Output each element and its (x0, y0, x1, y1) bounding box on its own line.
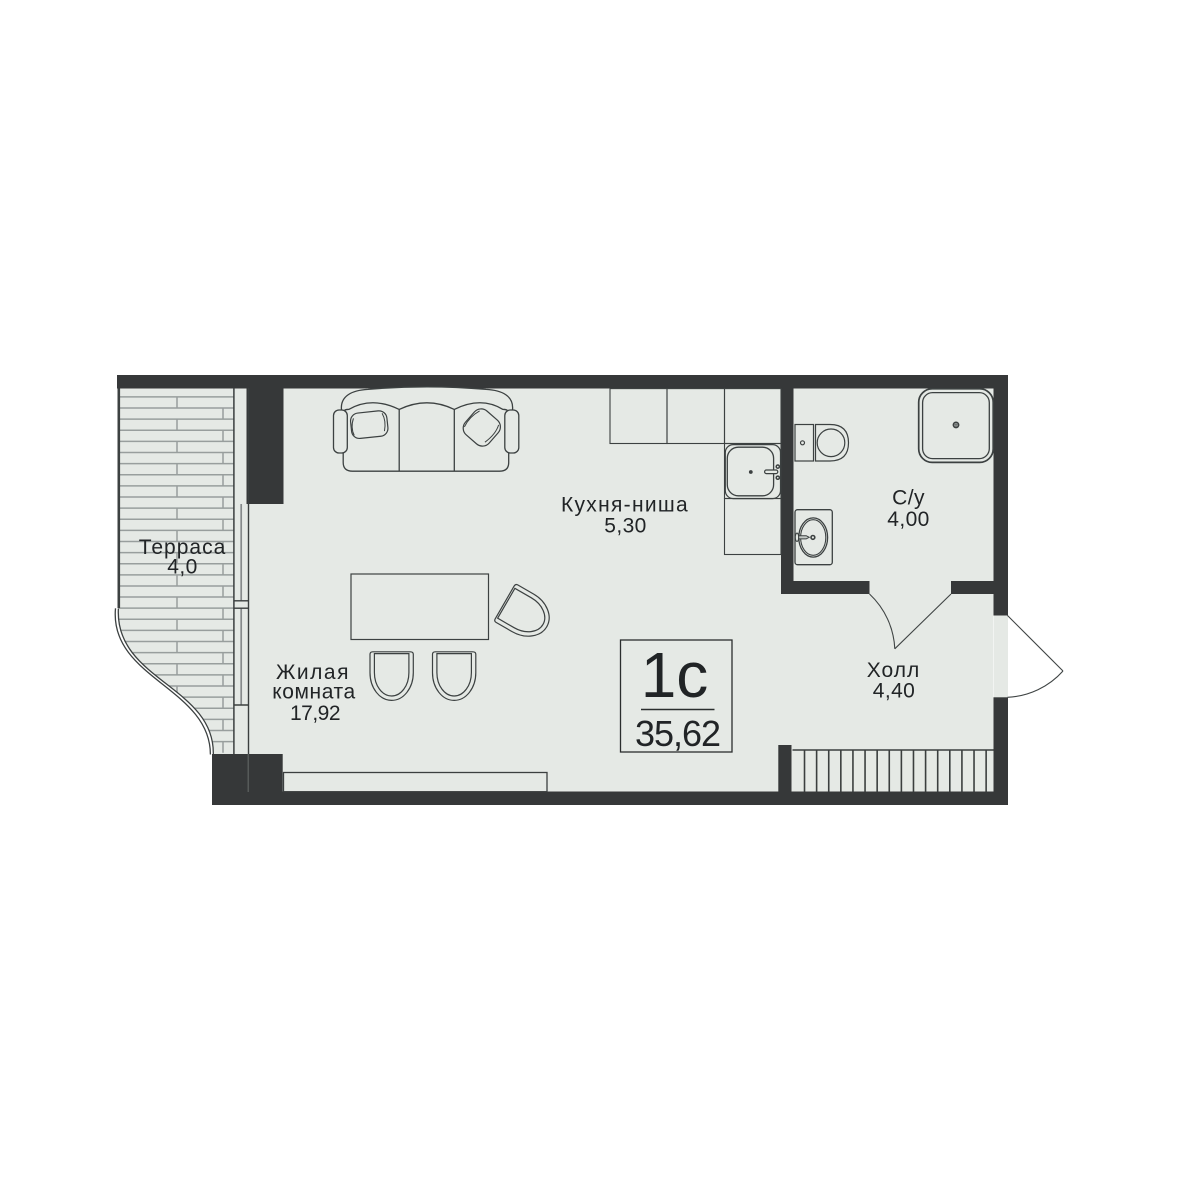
svg-text:4,40: 4,40 (873, 680, 915, 703)
svg-text:4,0: 4,0 (167, 556, 197, 579)
svg-text:С/у: С/у (892, 487, 925, 510)
svg-text:35,62: 35,62 (635, 713, 720, 754)
svg-text:17,92: 17,92 (290, 702, 340, 725)
svg-text:5,30: 5,30 (604, 515, 646, 538)
svg-text:Кухня-ниша: Кухня-ниша (561, 493, 689, 516)
svg-text:1с: 1с (641, 639, 709, 711)
svg-text:комната: комната (272, 681, 356, 704)
svg-text:4,00: 4,00 (887, 508, 929, 531)
